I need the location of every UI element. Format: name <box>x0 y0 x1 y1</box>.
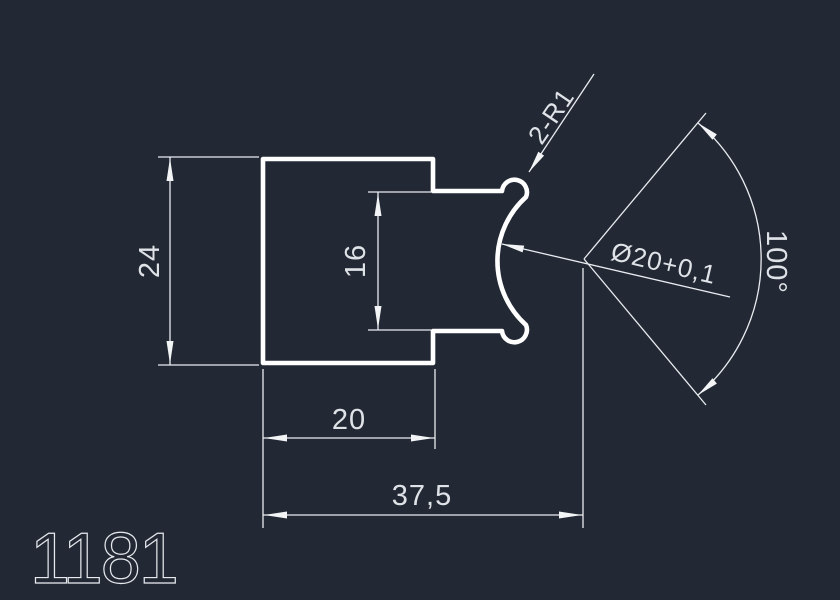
dim-20-arrow-left <box>264 435 287 442</box>
dim-37-arrow-right <box>559 512 582 519</box>
part-number-label: 1181 <box>30 519 177 599</box>
cad-drawing-canvas[interactable]: 24 16 20 37,5 <box>0 0 840 600</box>
dim-20-label: 20 <box>332 404 366 436</box>
profile-outline-group <box>263 159 527 363</box>
dim-20-arrow-right <box>411 435 434 442</box>
dim-16-arrow-down <box>375 306 382 329</box>
dim-37-label: 37,5 <box>392 480 452 512</box>
drawing-svg: 24 16 20 37,5 <box>0 0 840 600</box>
dim-24-arrow-down <box>167 341 174 364</box>
dim-37-arrow-left <box>264 512 287 519</box>
diameter-leader-arrow <box>502 244 524 252</box>
angle-arrow-lower <box>698 378 717 395</box>
fillet-leader-arrow <box>529 152 544 172</box>
angle-arrow-upper <box>698 123 717 140</box>
leader-diameter: Ø20+0,1 <box>502 236 730 297</box>
dim-24-label: 24 <box>134 244 166 278</box>
fillet-label: 2-R1 <box>522 83 581 150</box>
dim-opening-height: 16 <box>340 192 431 330</box>
angle-ray-upper <box>584 113 706 259</box>
profile-outline <box>263 159 527 363</box>
dim-overall-height: 24 <box>134 157 259 365</box>
dim-24-arrow-up <box>167 158 174 181</box>
dim-overall-width: 37,5 <box>263 268 583 528</box>
leader-fillet: 2-R1 <box>522 74 594 172</box>
angle-label: 100° <box>760 230 792 294</box>
dim-16-label: 16 <box>340 244 372 278</box>
dim-16-arrow-up <box>375 193 382 216</box>
